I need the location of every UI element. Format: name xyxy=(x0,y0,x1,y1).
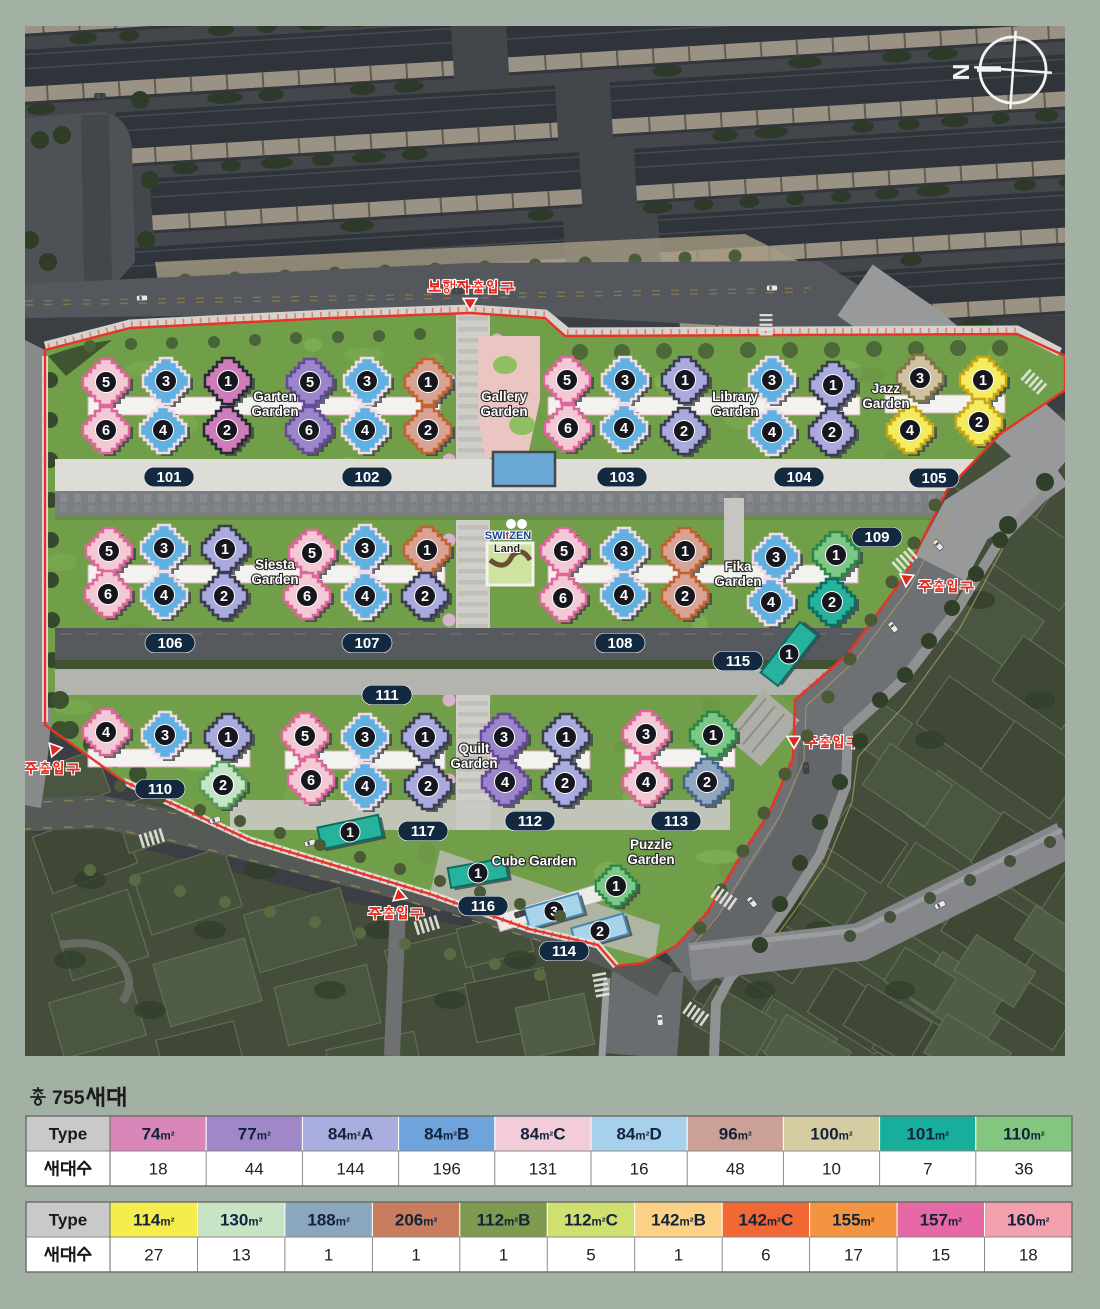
svg-text:105: 105 xyxy=(921,470,946,487)
svg-text:5: 5 xyxy=(586,1246,595,1265)
svg-text:Garden: Garden xyxy=(627,852,674,867)
svg-text:6: 6 xyxy=(761,1246,770,1265)
svg-text:2: 2 xyxy=(223,423,231,439)
svg-text:3: 3 xyxy=(361,730,369,746)
svg-text:755: 755 xyxy=(52,1087,85,1109)
svg-text:Garden: Garden xyxy=(714,574,761,589)
svg-text:6: 6 xyxy=(104,587,112,603)
svg-text:Garden: Garden xyxy=(862,396,909,411)
svg-text:Jazz: Jazz xyxy=(872,381,901,396)
svg-text:3: 3 xyxy=(162,374,170,390)
svg-text:17: 17 xyxy=(844,1246,863,1265)
svg-text:6: 6 xyxy=(303,589,311,605)
svg-text:Library: Library xyxy=(712,389,758,404)
svg-text:4: 4 xyxy=(768,425,776,441)
svg-text:3: 3 xyxy=(772,550,780,566)
svg-text:114: 114 xyxy=(552,943,577,960)
svg-text:115: 115 xyxy=(726,653,750,670)
svg-text:103: 103 xyxy=(609,469,634,486)
svg-text:1: 1 xyxy=(681,373,689,389)
svg-text:1: 1 xyxy=(224,730,232,746)
svg-text:Fika: Fika xyxy=(724,559,752,574)
svg-text:2: 2 xyxy=(561,776,569,792)
svg-text:2: 2 xyxy=(681,589,689,605)
svg-text:2: 2 xyxy=(828,425,836,441)
svg-text:3: 3 xyxy=(916,371,924,387)
svg-text:109: 109 xyxy=(864,529,889,546)
svg-text:3: 3 xyxy=(500,730,508,746)
svg-text:Puzzle: Puzzle xyxy=(630,837,673,852)
svg-text:4: 4 xyxy=(361,423,369,439)
svg-text:110: 110 xyxy=(148,781,172,798)
svg-text:196: 196 xyxy=(433,1160,461,1179)
svg-text:111: 111 xyxy=(375,687,398,704)
svg-text:1: 1 xyxy=(324,1246,333,1265)
svg-text:3: 3 xyxy=(642,727,650,743)
svg-text:3: 3 xyxy=(361,541,369,557)
svg-text:1: 1 xyxy=(979,373,987,389)
svg-text:104: 104 xyxy=(786,469,812,486)
svg-text:2: 2 xyxy=(680,424,688,440)
svg-text:Gallery: Gallery xyxy=(481,389,527,404)
svg-text:4: 4 xyxy=(767,595,775,611)
svg-text:15: 15 xyxy=(931,1246,950,1265)
svg-text:1: 1 xyxy=(421,730,429,746)
svg-text:2: 2 xyxy=(596,923,604,939)
svg-text:Quilt: Quilt xyxy=(459,741,490,756)
svg-text:5: 5 xyxy=(563,373,571,389)
svg-text:5: 5 xyxy=(105,544,113,560)
svg-text:18: 18 xyxy=(1019,1246,1038,1265)
svg-text:1: 1 xyxy=(474,865,482,881)
svg-text:1: 1 xyxy=(424,375,432,391)
svg-text:44: 44 xyxy=(245,1160,264,1179)
svg-text:101: 101 xyxy=(156,469,181,486)
svg-text:6: 6 xyxy=(102,423,110,439)
svg-text:112m²C: 112m²C xyxy=(564,1211,618,1230)
svg-text:112m²B: 112m²B xyxy=(477,1211,531,1230)
svg-text:4: 4 xyxy=(102,725,110,741)
svg-text:2: 2 xyxy=(424,423,432,439)
svg-text:1: 1 xyxy=(674,1246,683,1265)
svg-text:6: 6 xyxy=(564,421,572,437)
svg-text:117: 117 xyxy=(411,823,435,840)
svg-text:112: 112 xyxy=(518,813,542,830)
svg-text:18: 18 xyxy=(149,1160,168,1179)
svg-text:2: 2 xyxy=(703,775,711,791)
svg-text:4: 4 xyxy=(620,421,628,437)
svg-text:Garten: Garten xyxy=(253,389,297,404)
svg-text:2: 2 xyxy=(975,415,983,431)
svg-text:Type: Type xyxy=(49,1211,87,1230)
svg-text:1: 1 xyxy=(709,728,717,744)
svg-text:Cube Garden: Cube Garden xyxy=(492,854,577,869)
svg-text:2: 2 xyxy=(828,595,836,611)
svg-text:106: 106 xyxy=(157,635,182,652)
svg-text:144: 144 xyxy=(336,1160,364,1179)
svg-text:2: 2 xyxy=(219,778,227,794)
svg-text:13: 13 xyxy=(232,1246,251,1265)
svg-text:SWItZEN: SWItZEN xyxy=(485,530,532,542)
svg-text:1: 1 xyxy=(346,824,354,840)
svg-text:27: 27 xyxy=(144,1246,163,1265)
svg-text:16: 16 xyxy=(630,1160,649,1179)
svg-text:4: 4 xyxy=(501,775,509,791)
svg-text:N: N xyxy=(948,64,974,81)
svg-text:Garden: Garden xyxy=(251,572,298,587)
svg-text:1: 1 xyxy=(612,879,620,895)
svg-text:1: 1 xyxy=(562,730,570,746)
svg-text:102: 102 xyxy=(354,469,379,486)
svg-text:Type: Type xyxy=(49,1125,87,1144)
svg-text:6: 6 xyxy=(307,773,315,789)
svg-text:1: 1 xyxy=(224,374,232,390)
svg-text:2: 2 xyxy=(424,779,432,795)
svg-text:4: 4 xyxy=(361,589,369,605)
svg-text:5: 5 xyxy=(306,375,314,391)
svg-text:4: 4 xyxy=(159,423,167,439)
svg-text:Garden: Garden xyxy=(711,404,758,419)
svg-text:Garden: Garden xyxy=(480,404,527,419)
svg-text:113: 113 xyxy=(664,813,688,830)
svg-text:1: 1 xyxy=(411,1246,420,1265)
svg-text:142m²B: 142m²B xyxy=(651,1211,706,1230)
svg-text:3: 3 xyxy=(363,374,371,390)
svg-text:108: 108 xyxy=(607,635,632,652)
svg-text:3: 3 xyxy=(160,541,168,557)
svg-text:Garden: Garden xyxy=(251,404,298,419)
svg-text:4: 4 xyxy=(906,423,914,439)
svg-text:4: 4 xyxy=(642,775,650,791)
svg-text:4: 4 xyxy=(361,779,369,795)
svg-text:1: 1 xyxy=(681,544,689,560)
svg-text:6: 6 xyxy=(305,423,313,439)
svg-text:36: 36 xyxy=(1014,1160,1033,1179)
svg-text:3: 3 xyxy=(620,544,628,560)
svg-text:5: 5 xyxy=(301,729,309,745)
svg-text:Garden: Garden xyxy=(450,756,497,771)
svg-text:7: 7 xyxy=(923,1160,932,1179)
svg-text:142m²C: 142m²C xyxy=(739,1211,794,1230)
svg-text:1: 1 xyxy=(499,1246,508,1265)
svg-text:1: 1 xyxy=(832,548,840,564)
svg-text:5: 5 xyxy=(560,544,568,560)
svg-text:1: 1 xyxy=(829,378,837,394)
svg-text:48: 48 xyxy=(726,1160,745,1179)
svg-text:116: 116 xyxy=(471,898,495,915)
svg-text:2: 2 xyxy=(220,589,228,605)
svg-text:2: 2 xyxy=(421,589,429,605)
svg-text:107: 107 xyxy=(354,635,379,652)
svg-text:Land: Land xyxy=(494,543,520,555)
svg-text:1: 1 xyxy=(423,543,431,559)
svg-text:131: 131 xyxy=(529,1160,557,1179)
svg-text:10: 10 xyxy=(822,1160,841,1179)
svg-text:3: 3 xyxy=(768,373,776,389)
svg-text:4: 4 xyxy=(620,588,628,604)
svg-text:6: 6 xyxy=(559,591,567,607)
svg-text:3: 3 xyxy=(161,728,169,744)
svg-text:3: 3 xyxy=(621,373,629,389)
svg-text:1: 1 xyxy=(785,646,793,662)
svg-text:4: 4 xyxy=(160,588,168,604)
svg-text:5: 5 xyxy=(102,375,110,391)
svg-text:5: 5 xyxy=(308,546,316,562)
svg-text:Siesta: Siesta xyxy=(255,557,295,572)
svg-text:1: 1 xyxy=(221,542,229,558)
